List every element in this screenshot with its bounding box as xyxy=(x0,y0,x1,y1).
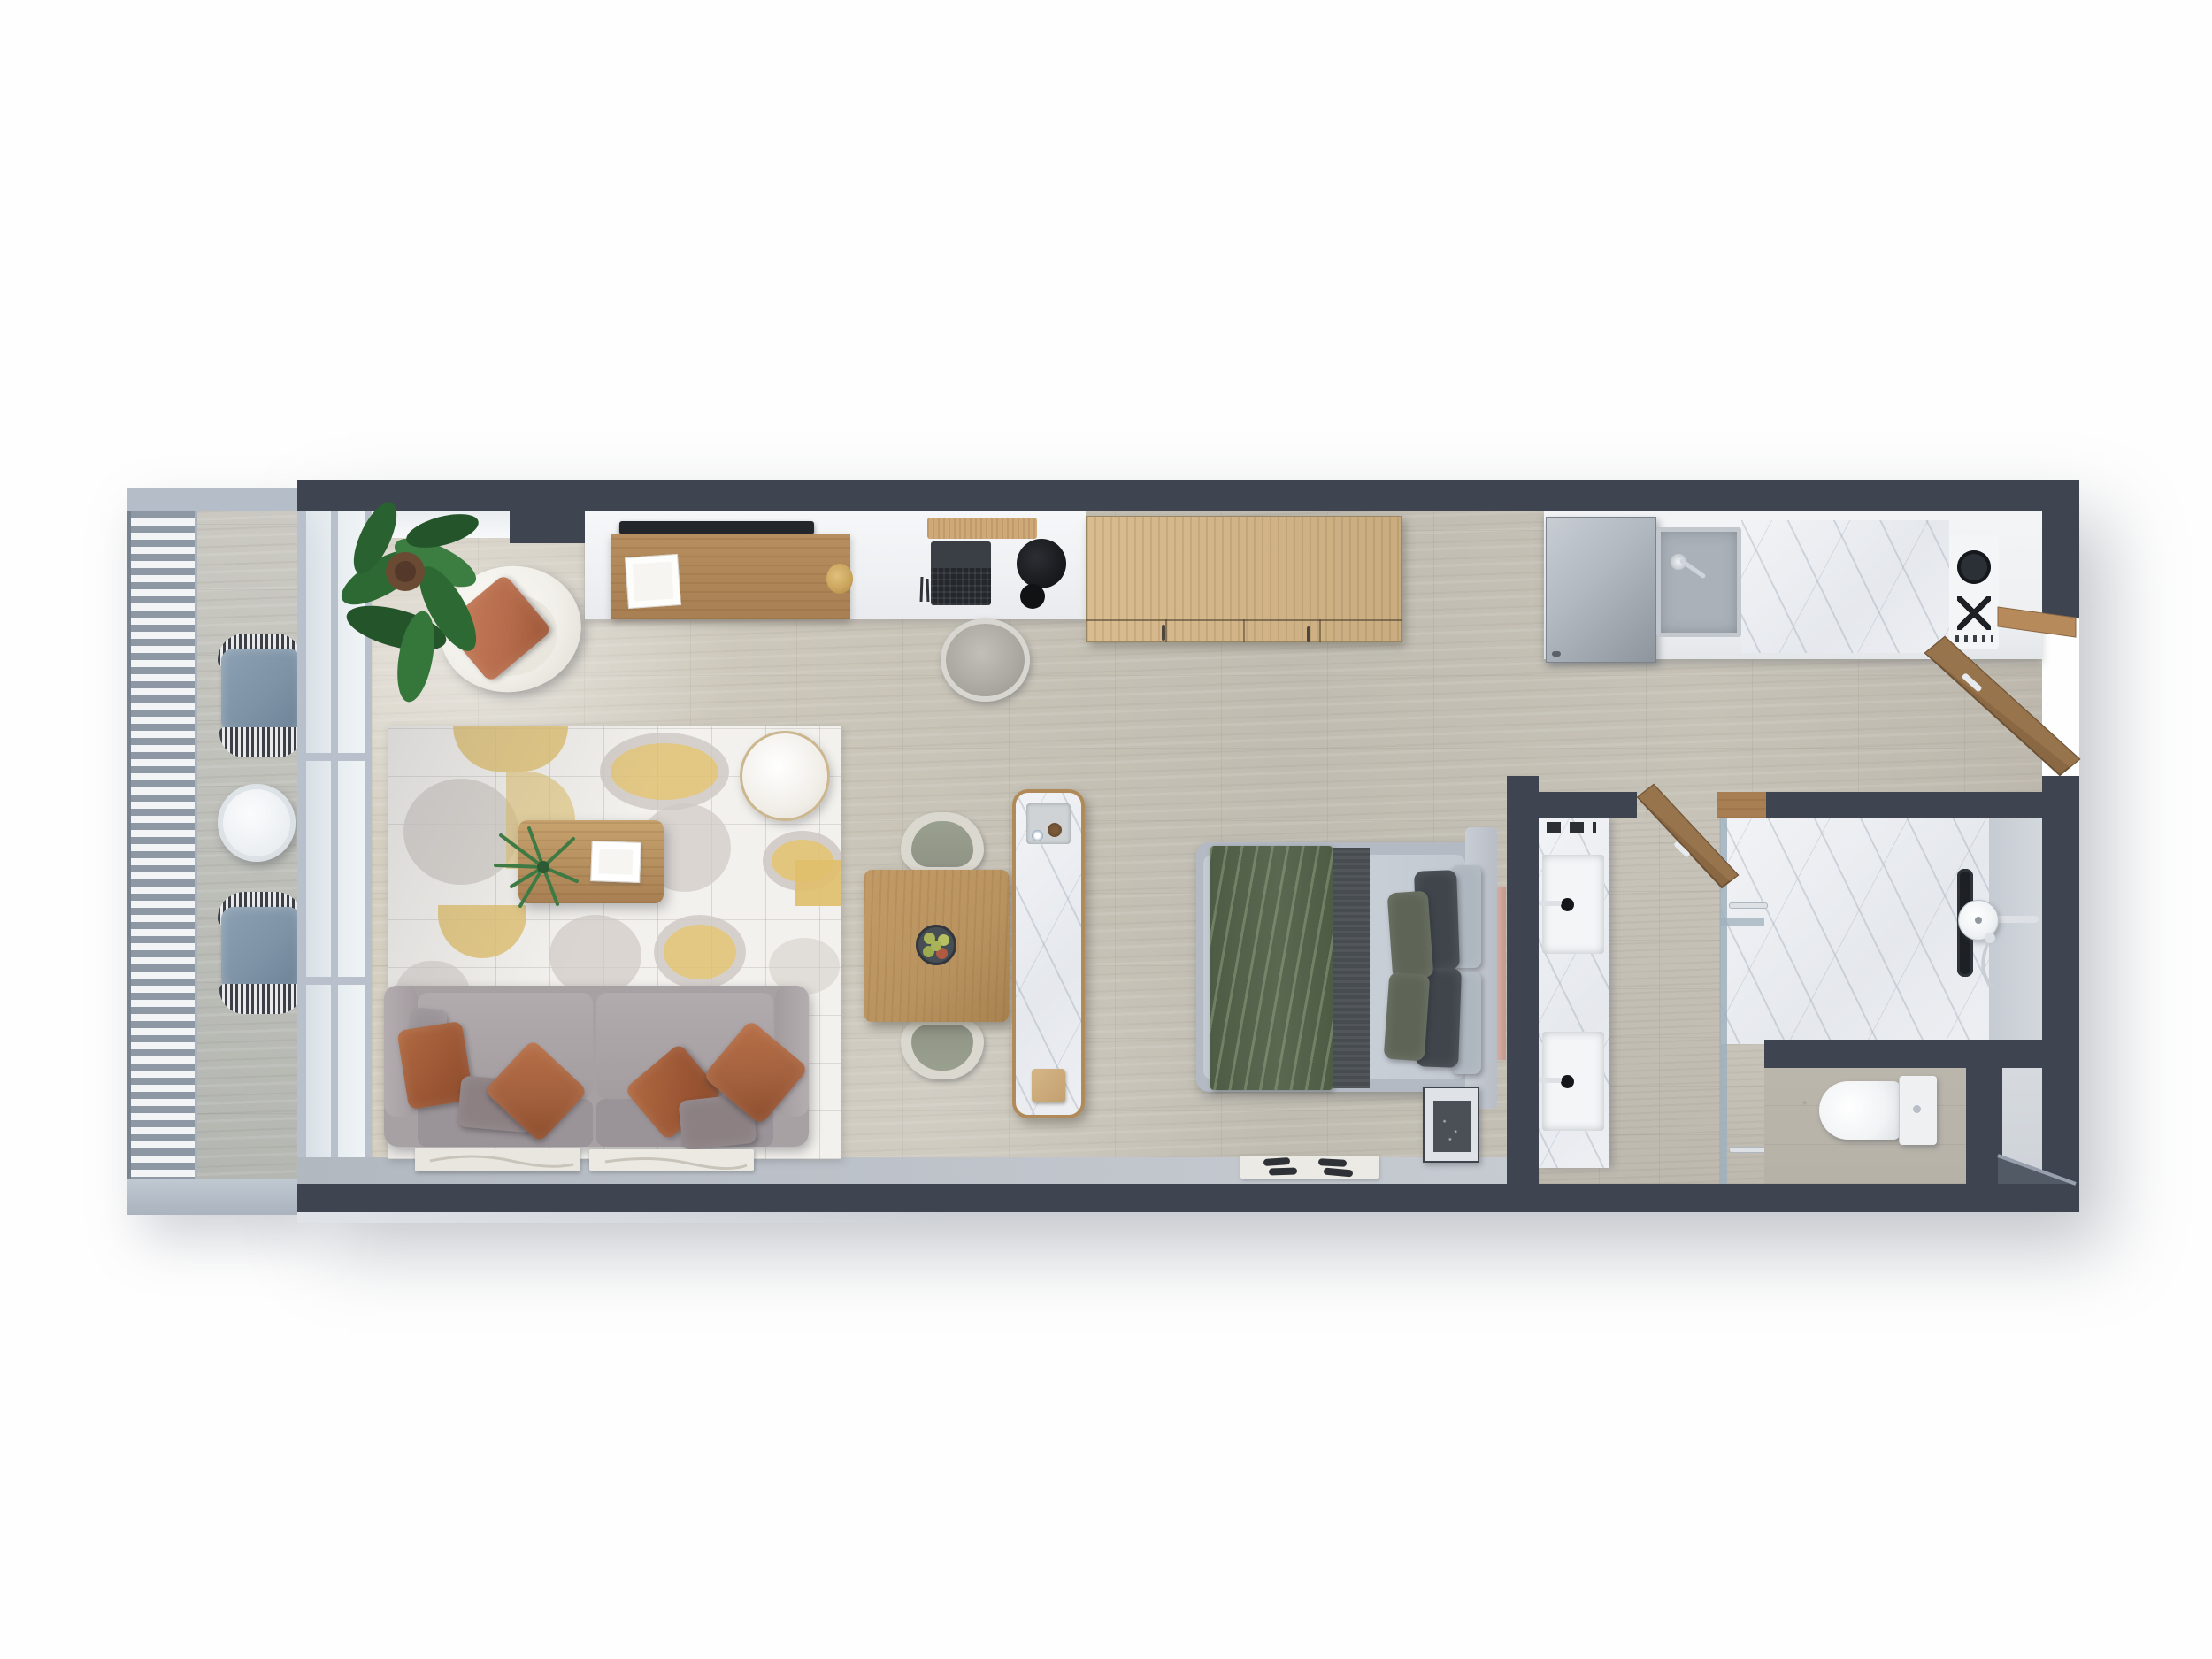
entrance-door-open xyxy=(1925,637,2079,775)
table-plant xyxy=(495,828,577,906)
floor-plan-canvas xyxy=(0,0,2212,1659)
chamfered-wall xyxy=(1998,1156,2076,1184)
counter-end-wood xyxy=(1998,607,2076,637)
hand-shower xyxy=(1983,933,1995,987)
art-panel-relief xyxy=(430,1156,747,1169)
potted-plant xyxy=(334,496,487,705)
bathroom-door-open xyxy=(1638,785,1738,887)
overlay-graphics xyxy=(0,0,2212,1659)
